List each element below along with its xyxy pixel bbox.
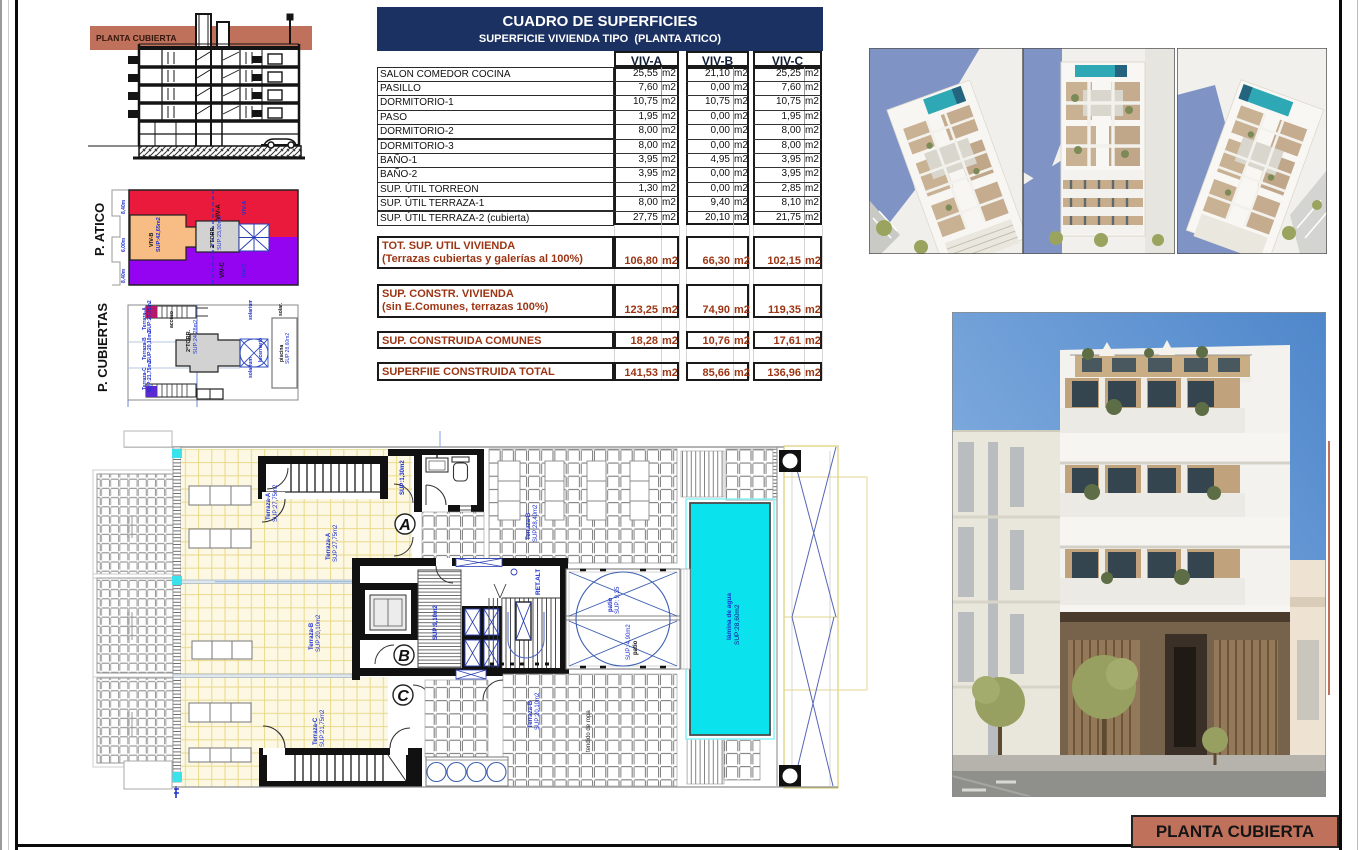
svg-text:8,40m: 8,40m xyxy=(121,268,127,283)
svg-text:A: A xyxy=(398,517,411,534)
svg-text:tendido de ropa: tendido de ropa xyxy=(586,710,592,752)
svg-text:Terraza-A: Terraza-A xyxy=(266,492,272,520)
svg-text:Terraza-B: Terraza-B xyxy=(528,700,534,728)
svg-text:SUP:21,75m2: SUP:21,75m2 xyxy=(320,709,326,747)
svg-text:SUP:21,75m2: SUP:21,75m2 xyxy=(147,360,153,392)
svg-text:SUP:28,60m2: SUP:28,60m2 xyxy=(285,333,291,364)
svg-text:PLANTA CUBIERTA: PLANTA CUBIERTA xyxy=(96,33,177,43)
svg-text:Terraza-B: Terraza-B xyxy=(526,512,532,540)
svg-text:C: C xyxy=(397,688,409,705)
svg-text:SUP:20,10m2: SUP:20,10m2 xyxy=(535,692,541,730)
svg-text:SUP:24,28m2: SUP:24,28m2 xyxy=(193,320,199,354)
svg-text:2ºTORR.: 2ºTORR. xyxy=(186,329,192,352)
svg-text:SUP:9,10m2: SUP:9,10m2 xyxy=(433,605,439,640)
svg-text:solarium: solarium xyxy=(248,357,254,378)
svg-text:SUP:20,10m2: SUP:20,10m2 xyxy=(147,330,153,362)
svg-text:patio: patio xyxy=(633,640,639,655)
svg-text:SUP:27,75m2: SUP:27,75m2 xyxy=(333,524,339,562)
svg-text:Terraza-C: Terraza-C xyxy=(313,717,319,745)
svg-text:acceso: acceso xyxy=(169,311,175,328)
svg-text:SUP:28,40m2: SUP:28,40m2 xyxy=(533,504,539,542)
svg-text:2ºTORR.: 2ºTORR. xyxy=(210,225,216,248)
svg-text:VIV-B: VIV-B xyxy=(149,233,155,247)
svg-text:6,00m: 6,00m xyxy=(121,237,127,252)
svg-text:patio: patio xyxy=(608,597,614,612)
svg-text:P. CUBIERTAS: P. CUBIERTAS xyxy=(95,303,110,392)
svg-text:B: B xyxy=(398,648,410,665)
svg-text:VIV-A: VIV-A xyxy=(242,201,248,215)
svg-text:SUP:27,75m2: SUP:27,75m2 xyxy=(273,484,279,522)
svg-text:SUP: 4,90m2: SUP: 4,90m2 xyxy=(626,624,632,660)
svg-text:SUP:1,30m2: SUP:1,30m2 xyxy=(400,460,406,495)
svg-text:RET.ALT: RET.ALT xyxy=(535,569,542,595)
svg-text:SUP: 9,35: SUP: 9,35 xyxy=(615,586,621,614)
svg-text:SUP:27,75m2: SUP:27,75m2 xyxy=(147,300,153,332)
svg-text:P. ATICO: P. ATICO xyxy=(92,203,107,256)
svg-text:lucernario: lucernario xyxy=(258,338,264,362)
svg-text:VIV-C: VIV-C xyxy=(242,264,248,278)
svg-text:Terraza-A: Terraza-A xyxy=(326,532,332,560)
svg-text:SUP:23,00m2: SUP:23,00m2 xyxy=(217,216,223,250)
svg-text:SUP:42,65m2: SUP:42,65m2 xyxy=(156,217,162,252)
svg-text:solar.: solar. xyxy=(278,302,284,316)
svg-text:VIV-C: VIV-C xyxy=(220,262,226,278)
svg-text:Terraza-B: Terraza-B xyxy=(309,622,315,650)
svg-text:SUP:20,10m2: SUP:20,10m2 xyxy=(316,614,322,652)
svg-text:solarium: solarium xyxy=(248,300,254,320)
svg-text:8,40m: 8,40m xyxy=(121,199,127,214)
